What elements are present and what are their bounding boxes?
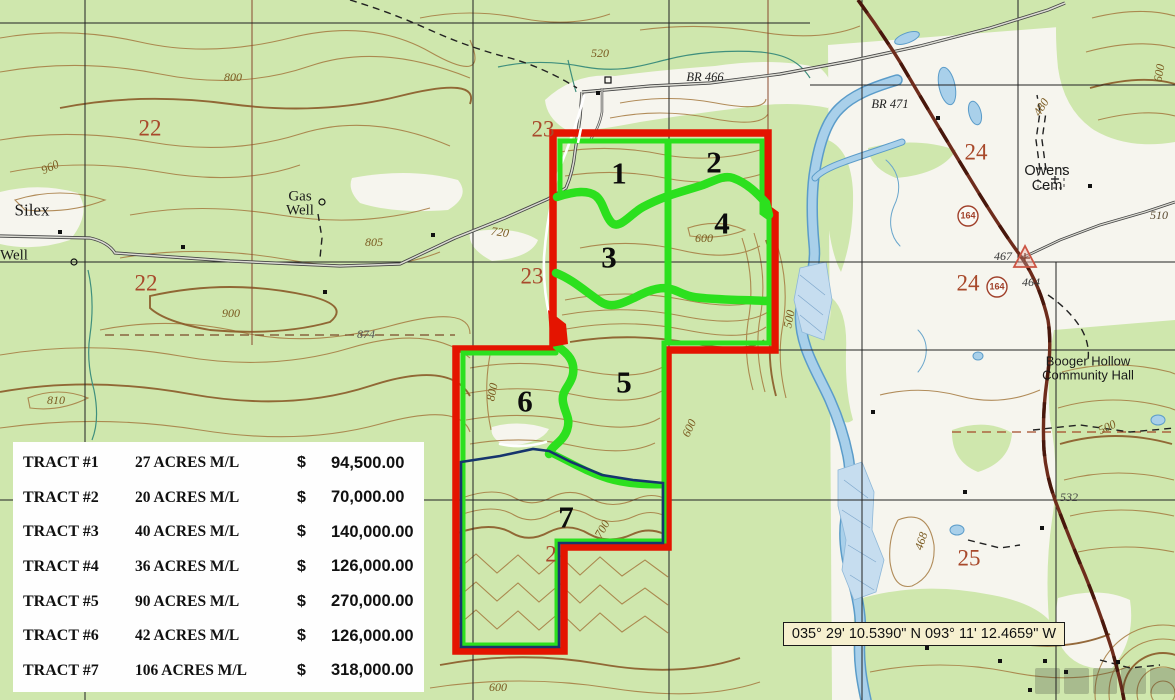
price-value: 126,000.00 <box>331 557 442 576</box>
price-value: 318,000.00 <box>331 661 442 680</box>
price-value: 70,000.00 <box>331 488 432 507</box>
table-row: TRACT #3 40 ACRES M/L $ 140,000.00 <box>13 523 424 542</box>
table-row: TRACT #4 36 ACRES M/L $ 126,000.00 <box>13 557 424 576</box>
currency-sign: $ <box>297 489 331 507</box>
currency-sign: $ <box>297 454 331 472</box>
price-value: 140,000.00 <box>331 523 442 542</box>
tract-price-table: TRACT #1 27 ACRES M/L $ 94,500.00 TRACT … <box>13 442 424 692</box>
route-shield-circle <box>958 206 978 226</box>
currency-sign: $ <box>297 627 331 645</box>
price-value: 94,500.00 <box>331 454 432 473</box>
price-value: 126,000.00 <box>331 627 442 646</box>
watermark <box>1035 668 1175 694</box>
tract-label: TRACT #7 <box>23 662 135 680</box>
tract-label: TRACT #3 <box>23 523 135 541</box>
tract-label: TRACT #4 <box>23 558 135 576</box>
acres-value: 42 ACRES M/L <box>135 627 297 645</box>
currency-sign: $ <box>297 593 331 611</box>
table-row: TRACT #5 90 ACRES M/L $ 270,000.00 <box>13 592 424 611</box>
acres-value: 36 ACRES M/L <box>135 558 297 576</box>
acres-value: 40 ACRES M/L <box>135 523 297 541</box>
price-value: 270,000.00 <box>331 592 442 611</box>
acres-value: 90 ACRES M/L <box>135 593 297 611</box>
tract-label: TRACT #5 <box>23 593 135 611</box>
tract-label: TRACT #6 <box>23 627 135 645</box>
tract-label: TRACT #1 <box>23 454 135 472</box>
acres-value: 20 ACRES M/L <box>135 489 297 507</box>
acres-value: 27 ACRES M/L <box>135 454 297 472</box>
acres-value: 106 ACRES M/L <box>135 662 297 680</box>
gps-coordinate-box: 035° 29' 10.5390" N 093° 11' 12.4659" W <box>783 622 1065 646</box>
table-row: TRACT #2 20 ACRES M/L $ 70,000.00 <box>13 488 424 507</box>
route-shield-circle <box>987 277 1007 297</box>
table-row: TRACT #1 27 ACRES M/L $ 94,500.00 <box>13 454 424 473</box>
currency-sign: $ <box>297 558 331 576</box>
gps-coordinates-text: 035° 29' 10.5390" N 093° 11' 12.4659" W <box>792 626 1056 642</box>
currency-sign: $ <box>297 662 331 680</box>
topo-map-screenshot: 22 22 23 23 24 24 25 2 1 2 3 4 5 6 7 Sil… <box>0 0 1175 700</box>
table-row: TRACT #6 42 ACRES M/L $ 126,000.00 <box>13 627 424 646</box>
tract-label: TRACT #2 <box>23 489 135 507</box>
table-row: TRACT #7 106 ACRES M/L $ 318,000.00 <box>13 661 424 680</box>
currency-sign: $ <box>297 523 331 541</box>
